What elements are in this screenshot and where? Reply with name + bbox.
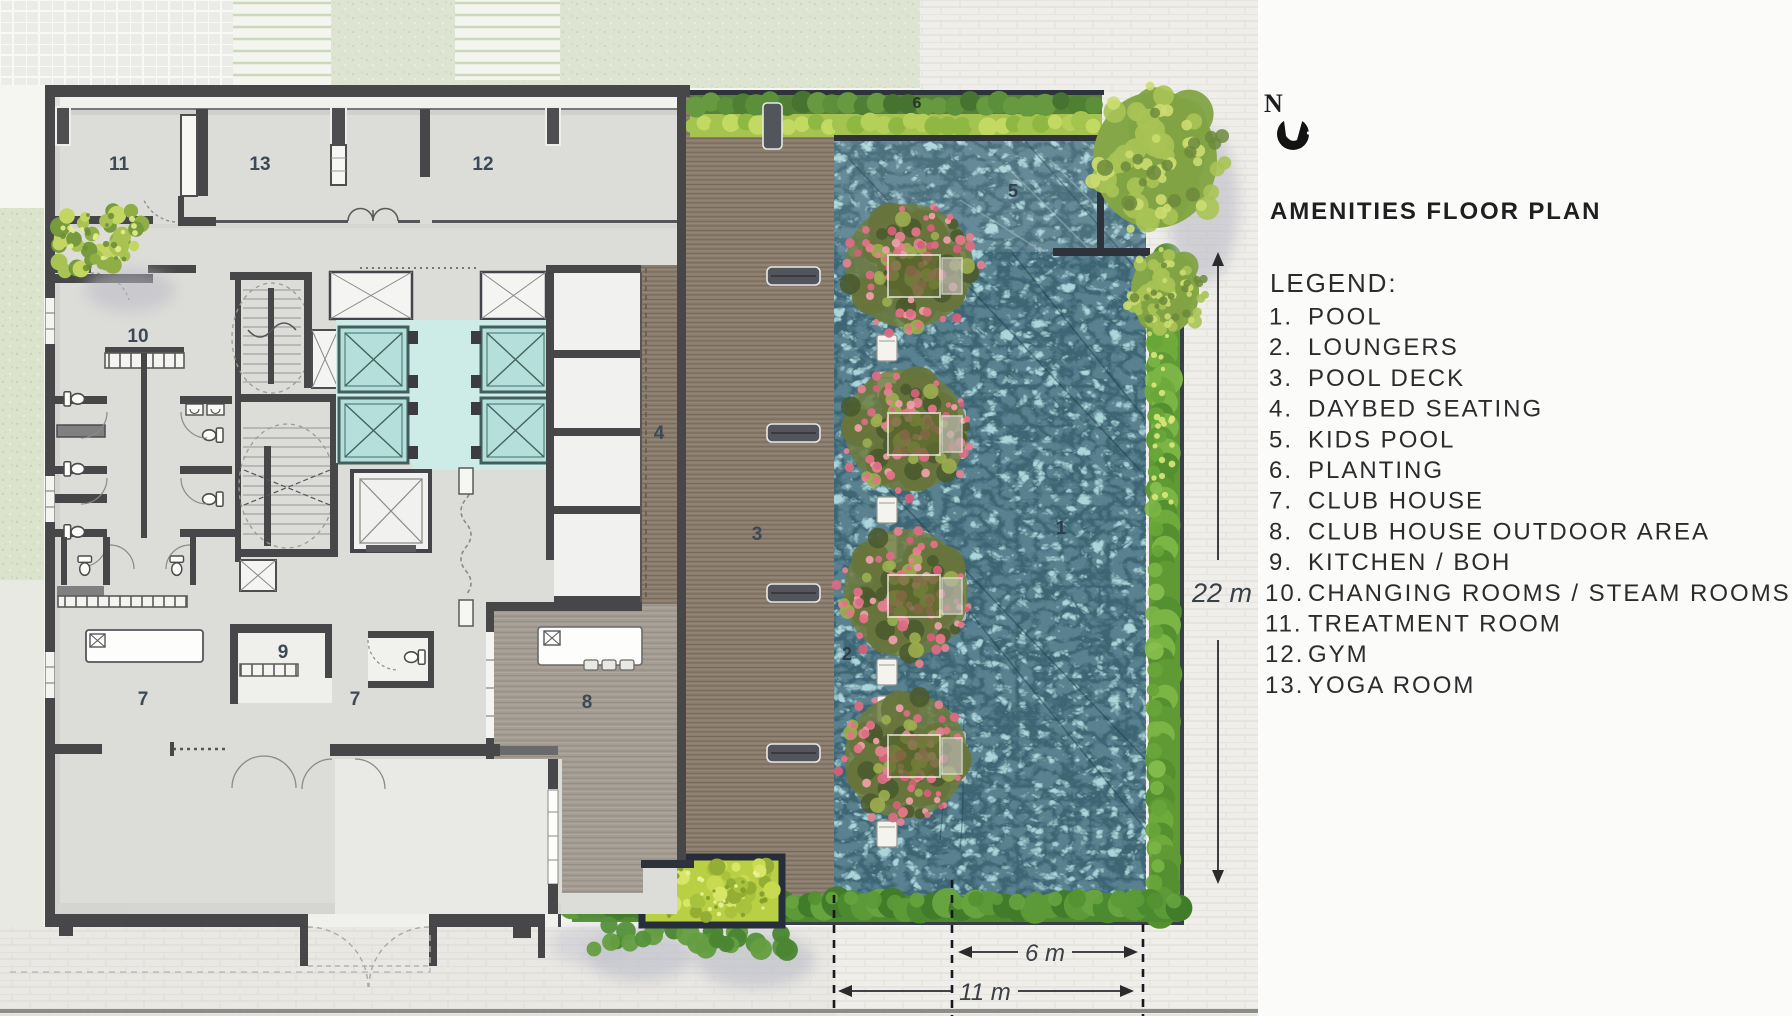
svg-text:5.: 5. bbox=[1269, 426, 1293, 453]
svg-text:13.: 13. bbox=[1265, 672, 1304, 699]
svg-text:LOUNGERS: LOUNGERS bbox=[1308, 334, 1459, 361]
svg-text:3.: 3. bbox=[1269, 365, 1293, 392]
svg-text:6.: 6. bbox=[1269, 457, 1293, 484]
svg-text:7.: 7. bbox=[1269, 488, 1293, 515]
svg-text:PLANTING: PLANTING bbox=[1308, 457, 1444, 484]
svg-text:9.: 9. bbox=[1269, 549, 1293, 576]
svg-text:4.: 4. bbox=[1269, 396, 1293, 423]
svg-text:10: 10 bbox=[127, 326, 148, 347]
svg-text:8.: 8. bbox=[1269, 518, 1293, 545]
svg-text:3: 3 bbox=[752, 524, 763, 545]
svg-text:11: 11 bbox=[109, 154, 130, 175]
svg-text:CHANGING ROOMS / STEAM ROOMS: CHANGING ROOMS / STEAM ROOMS bbox=[1308, 580, 1791, 607]
svg-text:DAYBED SEATING: DAYBED SEATING bbox=[1308, 396, 1543, 423]
svg-text:YOGA ROOM: YOGA ROOM bbox=[1308, 672, 1475, 699]
svg-text:8: 8 bbox=[582, 692, 593, 713]
svg-text:7: 7 bbox=[350, 689, 361, 710]
svg-text:7: 7 bbox=[138, 689, 149, 710]
svg-text:6 m: 6 m bbox=[1025, 940, 1065, 967]
svg-text:12: 12 bbox=[472, 154, 493, 175]
svg-text:2.: 2. bbox=[1269, 334, 1293, 361]
svg-text:LEGEND:: LEGEND: bbox=[1270, 268, 1397, 298]
svg-text:4: 4 bbox=[654, 423, 665, 444]
svg-text:5: 5 bbox=[1008, 181, 1018, 201]
svg-text:1.: 1. bbox=[1269, 304, 1293, 331]
svg-text:12.: 12. bbox=[1265, 641, 1304, 668]
svg-text:CLUB HOUSE OUTDOOR AREA: CLUB HOUSE OUTDOOR AREA bbox=[1308, 518, 1710, 545]
svg-text:11 m: 11 m bbox=[959, 979, 1011, 1006]
svg-text:13: 13 bbox=[249, 154, 270, 175]
svg-text:6: 6 bbox=[913, 95, 922, 112]
svg-text:AMENITIES FLOOR PLAN: AMENITIES FLOOR PLAN bbox=[1270, 198, 1601, 225]
svg-text:TREATMENT ROOM: TREATMENT ROOM bbox=[1308, 611, 1562, 638]
svg-text:10.: 10. bbox=[1265, 580, 1304, 607]
svg-text:11.: 11. bbox=[1265, 611, 1303, 638]
svg-text:9: 9 bbox=[278, 642, 289, 663]
svg-text:POOL DECK: POOL DECK bbox=[1308, 365, 1465, 392]
svg-text:POOL: POOL bbox=[1308, 304, 1383, 331]
svg-text:N: N bbox=[1264, 89, 1283, 118]
svg-text:CLUB HOUSE: CLUB HOUSE bbox=[1308, 488, 1484, 515]
svg-text:GYM: GYM bbox=[1308, 641, 1369, 668]
svg-text:22 m: 22 m bbox=[1191, 578, 1252, 608]
svg-text:KITCHEN / BOH: KITCHEN / BOH bbox=[1308, 549, 1511, 576]
svg-text:KIDS POOL: KIDS POOL bbox=[1308, 426, 1455, 453]
svg-text:1: 1 bbox=[1056, 518, 1066, 538]
svg-text:2: 2 bbox=[842, 644, 852, 664]
